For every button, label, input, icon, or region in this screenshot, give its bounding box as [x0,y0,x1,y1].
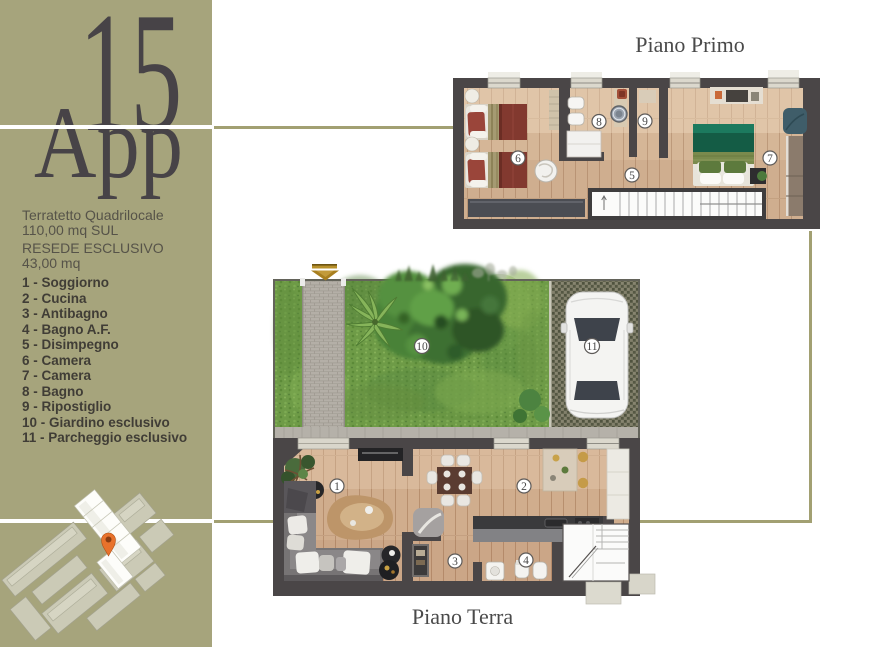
svg-text:8: 8 [596,117,602,129]
svg-text:9: 9 [642,116,648,128]
svg-text:6: 6 [515,153,521,165]
svg-text:10: 10 [416,341,428,353]
svg-text:2: 2 [521,481,527,493]
svg-text:11: 11 [586,341,597,353]
svg-text:4: 4 [523,555,529,567]
svg-text:1: 1 [334,481,340,493]
svg-text:7: 7 [767,153,773,165]
svg-text:5: 5 [629,170,635,182]
svg-text:3: 3 [452,556,458,568]
